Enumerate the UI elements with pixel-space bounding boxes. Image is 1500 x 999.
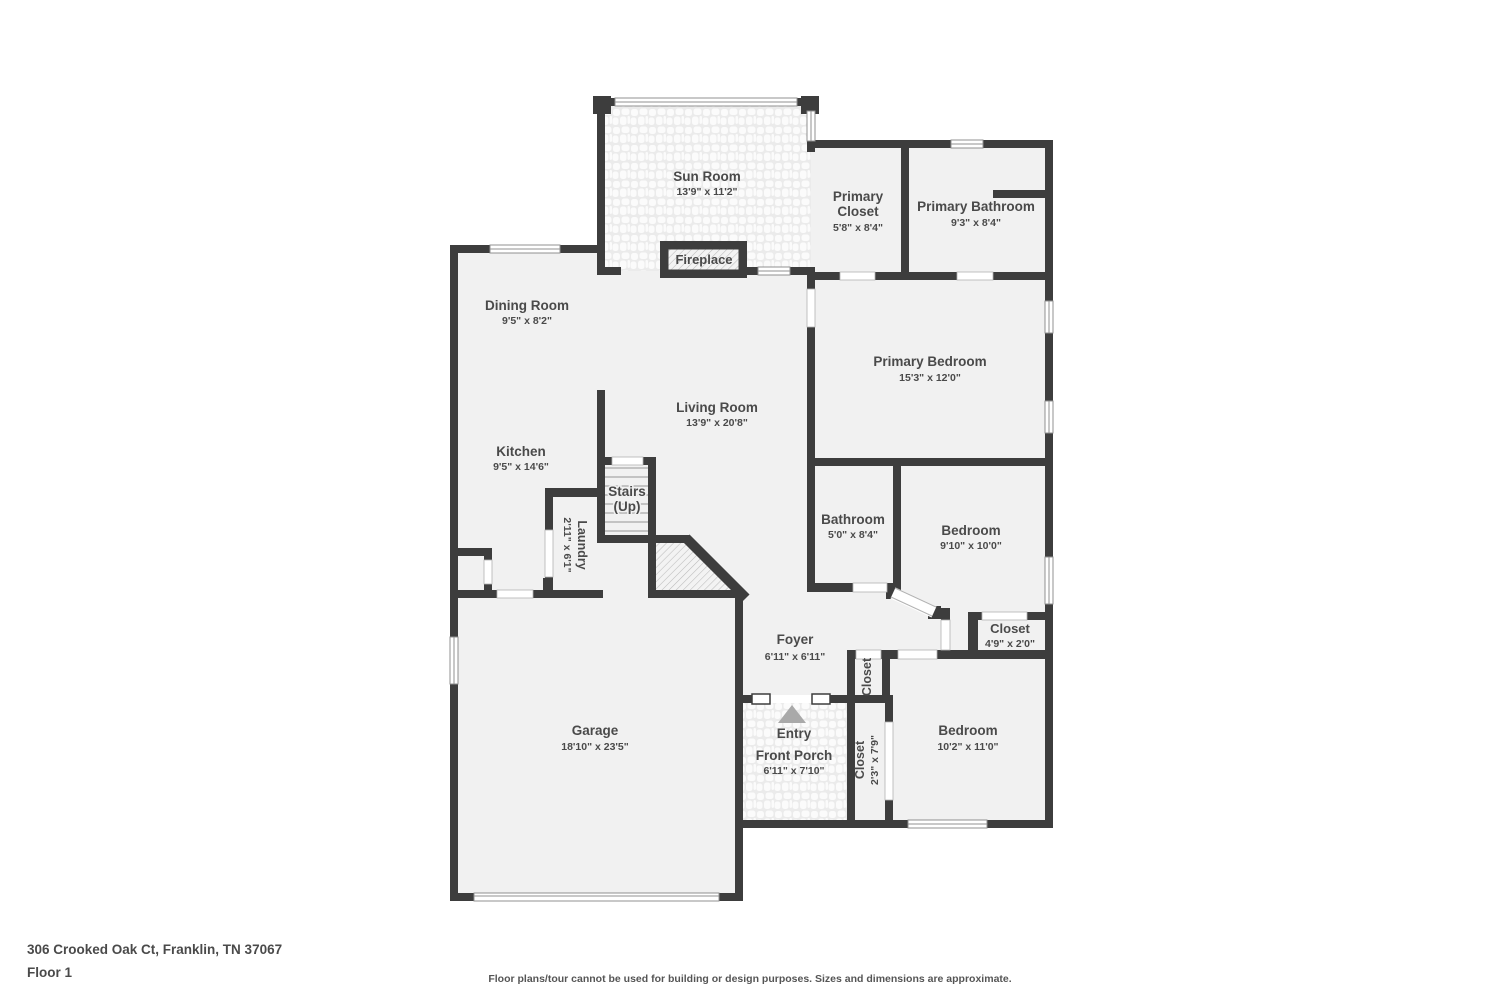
window [1045, 301, 1053, 333]
kitchen-label: Kitchen [496, 444, 546, 459]
primary-closet-dims: 5'8" x 8'4" [833, 222, 883, 234]
sun-room-dims: 13'9" x 11'2" [676, 186, 737, 198]
window [807, 111, 815, 141]
closet-hall-label: Closet [990, 621, 1030, 636]
foyer-dims: 6'11" x 6'11" [765, 651, 826, 663]
fireplace-label: Fireplace [675, 252, 732, 267]
closet-foyer-label: Closet [860, 657, 874, 696]
stairs-label-1: Stairs [608, 484, 646, 499]
window [1045, 557, 1053, 604]
window [490, 245, 560, 253]
living-room-label: Living Room [676, 400, 758, 415]
entry-label: Entry [777, 726, 812, 741]
bathroom-dims: 5'0" x 8'4" [828, 529, 878, 541]
primary-bathroom-label: Primary Bathroom [917, 199, 1035, 214]
floor-plan-canvas: Sun Room 13'9" x 11'2" Fireplace Primary… [0, 0, 1500, 999]
window [758, 267, 790, 275]
bedroom-lower-dims: 10'2" x 11'0" [937, 741, 998, 753]
address-text: 306 Crooked Oak Ct, Franklin, TN 37067 [27, 942, 282, 957]
front-door-sidelight-left [752, 694, 770, 704]
stairs-label-2: (Up) [614, 499, 641, 514]
garage-door [474, 893, 719, 901]
window [1045, 401, 1053, 433]
bedroom-lower-label: Bedroom [938, 723, 997, 738]
primary-closet-label-1: Primary [833, 189, 884, 204]
disclaimer-text: Floor plans/tour cannot be used for buil… [488, 973, 1011, 985]
dining-room-dims: 9'5" x 8'2" [502, 315, 552, 327]
closet-bedroom-dims: 2'3" x 7'9" [869, 735, 881, 785]
front-porch-dims: 6'11" x 7'10" [763, 765, 824, 777]
bedroom-mid-dims: 9'10" x 10'0" [940, 540, 1002, 552]
bedroom-mid-label: Bedroom [941, 523, 1000, 538]
living-room-dims: 13'9" x 20'8" [686, 417, 748, 429]
garage-label: Garage [572, 723, 619, 738]
kitchen-dims: 9'5" x 14'6" [493, 461, 549, 473]
window [908, 820, 987, 828]
laundry-label: Laundry [575, 520, 589, 569]
window [450, 637, 458, 684]
primary-bedroom-dims: 15'3" x 12'0" [899, 372, 961, 384]
primary-bedroom-label: Primary Bedroom [873, 354, 986, 369]
front-porch-label: Front Porch [756, 748, 833, 763]
closet-hall-dims: 4'9" x 2'0" [985, 638, 1035, 650]
closet-bedroom-label: Closet [853, 740, 867, 779]
primary-closet-label-2: Closet [837, 204, 879, 219]
front-door [752, 694, 830, 704]
laundry-dims: 2'11" x 6'1" [561, 517, 573, 572]
window [951, 140, 983, 148]
garage-dims: 18'10" x 23'5" [561, 741, 629, 753]
bathroom-label: Bathroom [821, 512, 885, 527]
floor-number-text: Floor 1 [27, 965, 72, 980]
window [615, 98, 797, 106]
sun-room-label: Sun Room [673, 169, 741, 184]
floor-plan-page: Sun Room 13'9" x 11'2" Fireplace Primary… [0, 0, 1500, 999]
dining-room-label: Dining Room [485, 298, 569, 313]
foyer-label: Foyer [777, 632, 815, 647]
primary-bathroom-dims: 9'3" x 8'4" [951, 217, 1001, 229]
front-door-sidelight-right [812, 694, 830, 704]
